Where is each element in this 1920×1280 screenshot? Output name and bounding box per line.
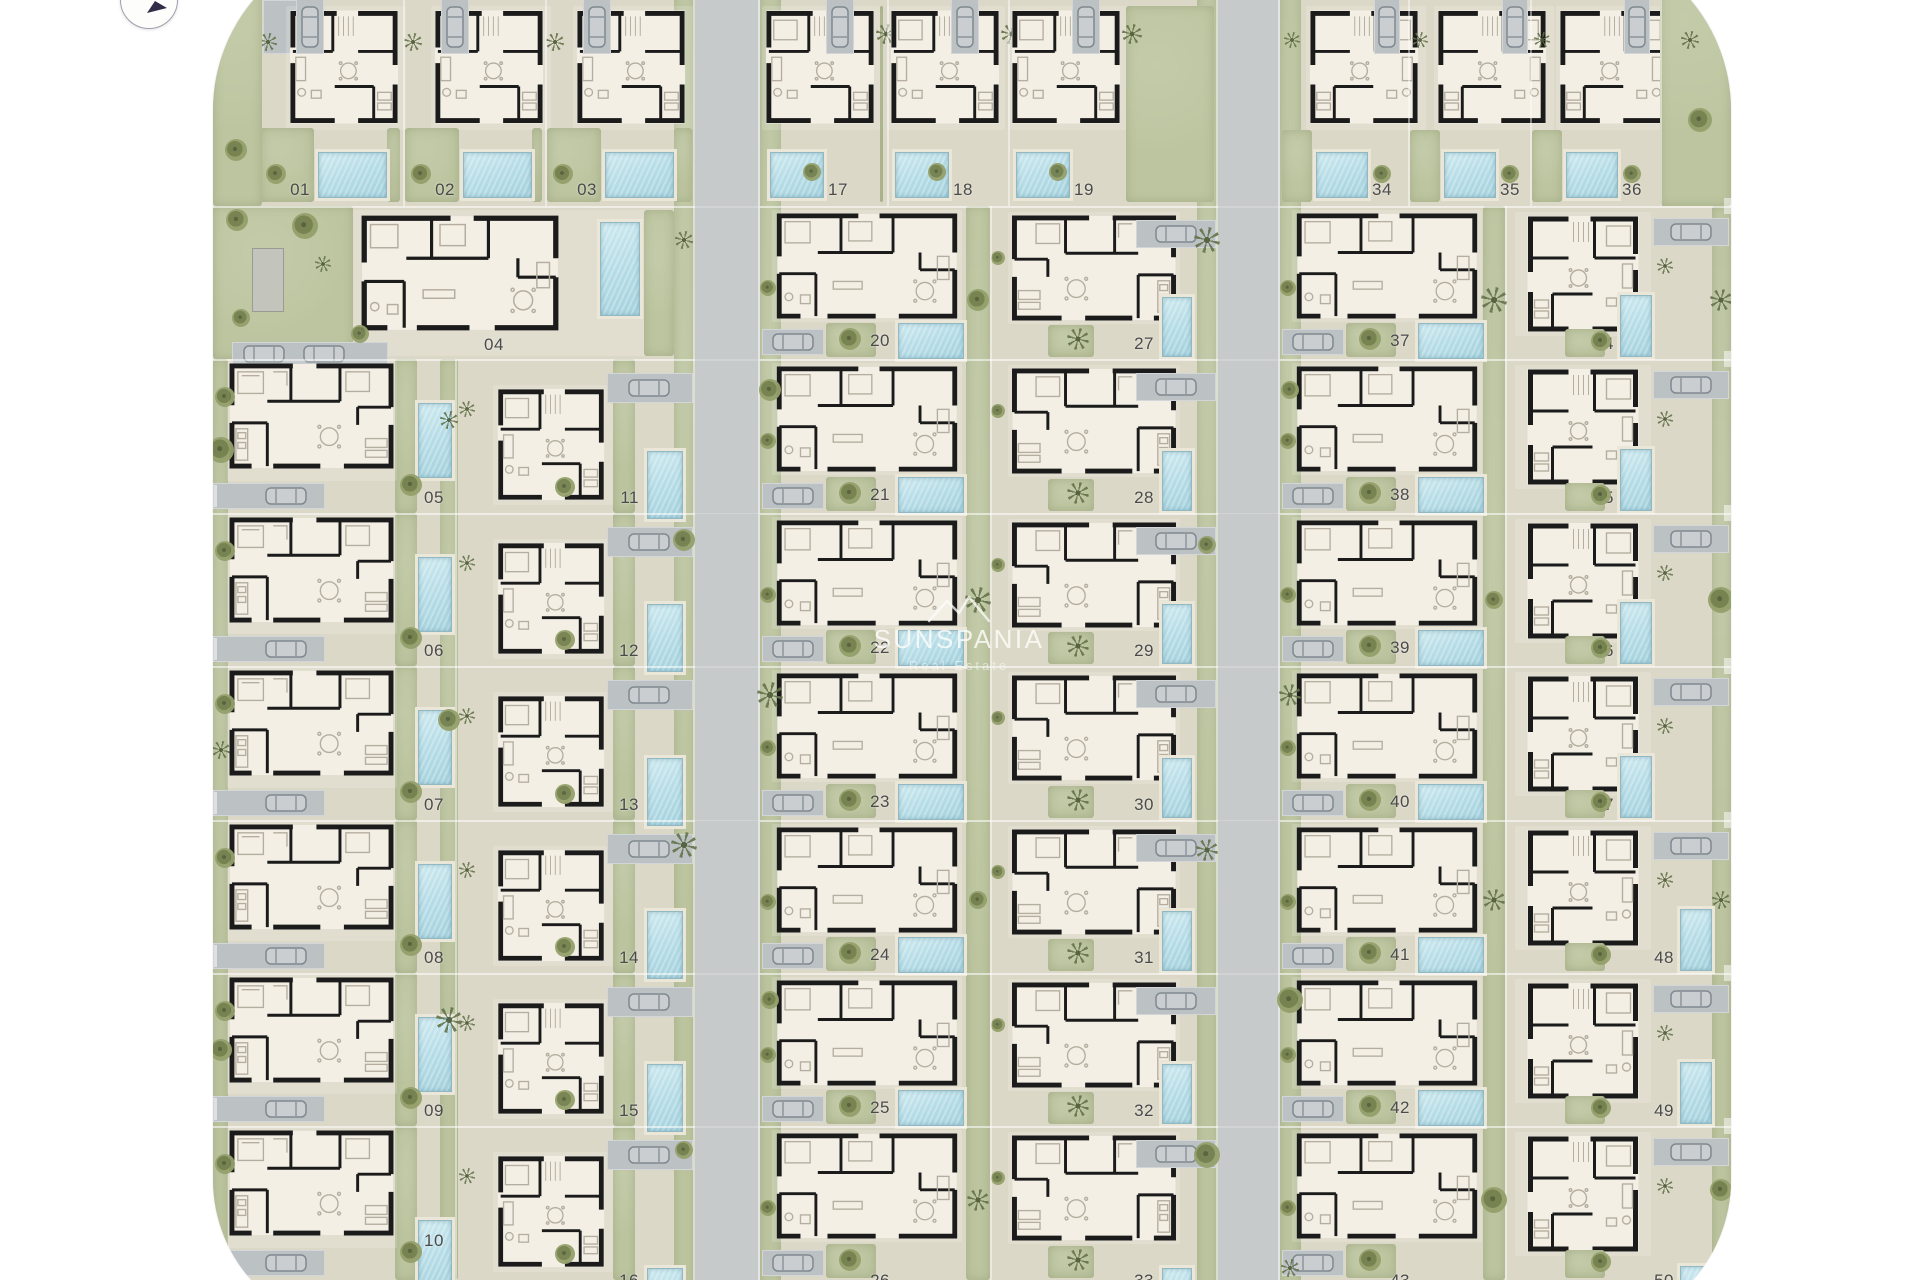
palm-icon (1067, 942, 1089, 964)
plot-number: 34 (1372, 181, 1408, 198)
plot-44[interactable]: 44 (1505, 206, 1731, 359)
tree-icon (1623, 165, 1641, 183)
plot-boundary (213, 666, 695, 668)
plot-34[interactable]: 34 (1280, 0, 1408, 206)
car-icon (1668, 681, 1714, 703)
plot-43[interactable]: 43 (1280, 1126, 1505, 1280)
plot-02[interactable]: 02 (403, 0, 545, 206)
plot-boundary (213, 513, 695, 515)
car-icon (1626, 4, 1648, 50)
plot-47[interactable]: 47 (1505, 666, 1731, 819)
car-icon (626, 377, 672, 399)
plot-37[interactable]: 37 (1280, 206, 1505, 359)
plot-boundary (213, 1126, 695, 1128)
house-floorplan (228, 976, 395, 1084)
plot-38[interactable]: 38 (1280, 359, 1505, 512)
tree-icon (1481, 1187, 1507, 1213)
palm-icon (459, 862, 475, 878)
tree-icon (761, 991, 779, 1009)
boundary-tick (1724, 198, 1731, 214)
tree-icon (760, 280, 776, 296)
curb-line (214, 638, 217, 660)
plot-42[interactable]: 42 (1280, 973, 1505, 1126)
road-seam (695, 1126, 760, 1128)
plot-number: 19 (1074, 181, 1110, 198)
plot-boundary (1660, 0, 1662, 206)
palm-icon (1194, 227, 1220, 253)
house-floorplan (495, 1001, 607, 1116)
house-floorplan (1294, 519, 1480, 627)
boundary-tick (1724, 351, 1731, 367)
plot-boundary (455, 359, 457, 1280)
house-floorplan (228, 1129, 395, 1237)
house-floorplan (1517, 1134, 1649, 1254)
swimming-pool (600, 222, 640, 316)
tree-icon (1194, 1142, 1220, 1168)
swimming-pool (898, 784, 964, 820)
palm-icon (967, 1189, 989, 1211)
plot-10[interactable]: 10 (213, 1126, 455, 1280)
tree-icon (555, 784, 575, 804)
plot-16[interactable]: 16 (455, 1126, 695, 1280)
car-icon (1153, 990, 1199, 1012)
plot-36[interactable]: 36 (1530, 0, 1660, 206)
plot-01[interactable]: 01 (258, 0, 403, 206)
swimming-pool (318, 152, 387, 198)
palm-icon (1657, 718, 1673, 734)
car-icon (444, 4, 466, 50)
tree-icon (991, 865, 1005, 879)
palm-icon (1279, 684, 1301, 706)
swimming-pool (1680, 1062, 1712, 1124)
plot-31[interactable]: 31 (990, 820, 1218, 973)
car-icon (626, 531, 672, 553)
tree-icon (991, 558, 1005, 572)
house-floorplan (774, 979, 960, 1087)
plot-boundary (1408, 0, 1410, 206)
plot-06[interactable]: 06 (213, 513, 455, 666)
palm-icon (459, 555, 475, 571)
plot-20[interactable]: 20 (760, 206, 990, 359)
car-icon (1668, 1141, 1714, 1163)
plot-number: 29 (1118, 642, 1154, 659)
car-icon (263, 792, 309, 814)
plot-46[interactable]: 46 (1505, 513, 1731, 666)
house-floorplan (228, 823, 395, 931)
palm-icon (440, 411, 458, 429)
tree-icon (400, 934, 422, 956)
car-icon (1668, 374, 1714, 396)
swimming-pool (1620, 449, 1652, 511)
plot-45[interactable]: 45 (1505, 359, 1731, 512)
swimming-pool (1418, 477, 1484, 513)
house-floorplan (1010, 8, 1122, 126)
palm-icon (1412, 32, 1428, 48)
garden (1532, 130, 1562, 202)
car-icon (1290, 485, 1336, 507)
house-floorplan (495, 848, 607, 963)
plot-number: 31 (1118, 949, 1154, 966)
car-icon (1290, 945, 1336, 967)
swimming-pool (418, 557, 452, 632)
palm-icon (671, 832, 697, 858)
swimming-pool (418, 864, 452, 939)
house-floorplan (774, 672, 960, 780)
plot-number: 03 (563, 181, 597, 198)
palm-icon (1281, 1259, 1299, 1277)
swimming-pool (898, 1090, 964, 1126)
road-seam (1218, 666, 1280, 668)
plot-number: 01 (276, 181, 310, 198)
car-icon (263, 1098, 309, 1120)
tree-icon (1708, 587, 1731, 613)
plot-boundary (545, 0, 547, 206)
plot-39[interactable]: 39 (1280, 513, 1505, 666)
plot-number: 18 (953, 181, 989, 198)
palm-icon (1067, 482, 1089, 504)
swimming-pool (647, 1268, 683, 1280)
car-icon (263, 945, 309, 967)
swimming-pool (1418, 784, 1484, 820)
plot-09[interactable]: 09 (213, 973, 455, 1126)
car-icon (770, 331, 816, 353)
palm-icon (546, 33, 564, 51)
plot-23[interactable]: 23 (760, 666, 990, 819)
tree-icon (967, 289, 989, 311)
swimming-pool (1418, 630, 1484, 666)
plot-boundary (1505, 206, 1507, 1280)
car-icon (1153, 223, 1199, 245)
plot-11[interactable]: 11 (455, 359, 695, 512)
house-floorplan (1517, 828, 1649, 948)
swimming-pool (1620, 756, 1652, 818)
car-icon (1668, 988, 1714, 1010)
car-icon (626, 1144, 672, 1166)
cursor-button[interactable] (120, 0, 178, 29)
cursor-icon (146, 0, 168, 14)
plot-number: 36 (1622, 181, 1658, 198)
plot-12[interactable]: 12 (455, 513, 695, 666)
curb-line (214, 485, 217, 507)
road-seam (1218, 359, 1280, 361)
swimming-pool (647, 604, 683, 672)
plot-26[interactable]: 26 (760, 1126, 990, 1280)
plot-29[interactable]: 29 (990, 513, 1218, 666)
tree-icon (803, 163, 821, 181)
plot-15[interactable]: 15 (455, 973, 695, 1126)
tree-icon (991, 404, 1005, 418)
palm-icon (315, 256, 331, 272)
car-icon (954, 4, 976, 50)
house-floorplan (228, 362, 395, 470)
road-seam (695, 820, 760, 822)
house-floorplan (774, 826, 960, 934)
garden (387, 128, 400, 202)
tree-icon (839, 789, 861, 811)
tree-icon (266, 164, 286, 184)
house-floorplan (774, 365, 960, 473)
plot-41[interactable]: 41 (1280, 820, 1505, 973)
car-icon (1153, 530, 1199, 552)
car-icon (829, 4, 851, 50)
car-icon (1668, 528, 1714, 550)
tree-icon (1198, 536, 1216, 554)
tree-icon (438, 709, 460, 731)
swimming-pool (1162, 1064, 1192, 1124)
garden (674, 128, 692, 202)
plot-number: 27 (1118, 335, 1154, 352)
swimming-pool (647, 911, 683, 979)
plot-number: 14 (601, 949, 639, 966)
road-seam (695, 973, 760, 975)
house-floorplan (774, 212, 960, 320)
boundary-tick (1724, 1118, 1731, 1134)
tree-icon (839, 482, 861, 504)
plot-27[interactable]: 27 (990, 206, 1218, 359)
plot-boundary (760, 1126, 1218, 1128)
tree-icon (839, 942, 861, 964)
palm-icon (1067, 789, 1089, 811)
house-floorplan (1294, 365, 1480, 473)
plot-boundary (990, 206, 992, 1280)
tree-icon (1359, 482, 1381, 504)
plot-17[interactable]: 17 (762, 0, 887, 206)
house-floorplan (1294, 826, 1480, 934)
tree-icon (1049, 163, 1067, 181)
palm-icon (1657, 1178, 1673, 1194)
house-floorplan (1294, 672, 1480, 780)
car-icon (263, 638, 309, 660)
plot-number: 49 (1636, 1102, 1674, 1119)
car-icon (626, 684, 672, 706)
plot-05[interactable]: 05 (213, 359, 455, 512)
corner-garden (213, 0, 262, 206)
swimming-pool (1162, 911, 1192, 971)
car-icon (1290, 331, 1336, 353)
swimming-pool (647, 758, 683, 826)
house-floorplan (1517, 981, 1649, 1101)
house-floorplan (360, 214, 560, 332)
swimming-pool (1680, 909, 1712, 971)
tree-icon (1359, 789, 1381, 811)
curb-line (214, 945, 217, 967)
house-floorplan (495, 387, 607, 502)
plot-50[interactable]: 50 (1505, 1126, 1731, 1280)
palm-icon (459, 401, 475, 417)
tree-icon (1688, 108, 1712, 132)
car-icon (1290, 1098, 1336, 1120)
plot-28[interactable]: 28 (990, 359, 1218, 512)
plot-boundary (403, 0, 405, 206)
swimming-pool (1620, 295, 1652, 357)
car-icon (770, 1098, 816, 1120)
tree-icon (991, 251, 1005, 265)
plot-33[interactable]: 33 (990, 1126, 1218, 1280)
plot-number: 04 (484, 336, 524, 353)
tree-icon (1710, 1179, 1731, 1201)
swimming-pool (1162, 297, 1192, 357)
swimming-pool (647, 451, 683, 519)
palm-icon (1657, 565, 1673, 581)
house-floorplan (228, 669, 395, 777)
tree-icon (351, 325, 369, 343)
palm-icon (1196, 839, 1218, 861)
tree-icon (1281, 381, 1299, 399)
tree-icon (400, 781, 422, 803)
tree-icon (1591, 485, 1611, 505)
swimming-pool (898, 477, 964, 513)
road-seam (1218, 206, 1280, 208)
palm-icon (1534, 32, 1550, 48)
plot-number: 15 (601, 1102, 639, 1119)
car-icon (1075, 4, 1097, 50)
swimming-pool (1444, 152, 1496, 198)
swimming-pool (1418, 937, 1484, 973)
garden (644, 210, 674, 356)
house-floorplan (495, 541, 607, 656)
tree-icon (555, 1244, 575, 1264)
plot-25[interactable]: 25 (760, 973, 990, 1126)
palm-icon (1712, 891, 1730, 909)
plot-32[interactable]: 32 (990, 973, 1218, 1126)
swimming-pool (1620, 602, 1652, 664)
plot-number: 48 (1636, 949, 1674, 966)
plot-boundary (760, 359, 1218, 361)
plot-number: 32 (1118, 1102, 1154, 1119)
tree-icon (1591, 1252, 1611, 1272)
swimming-pool (1418, 1090, 1484, 1126)
palm-icon (1681, 31, 1699, 49)
plot-22[interactable]: 22 (760, 513, 990, 666)
swimming-pool (605, 152, 674, 198)
car-icon (299, 4, 321, 50)
tree-icon (1280, 280, 1296, 296)
plot-49[interactable]: 49 (1505, 973, 1731, 1126)
tree-icon (759, 379, 781, 401)
plot-number: 10 (419, 1232, 449, 1249)
tree-icon (928, 163, 946, 181)
garden (1410, 130, 1440, 202)
car-icon (1153, 1143, 1199, 1165)
tree-icon (675, 1141, 693, 1159)
swimming-pool (898, 323, 964, 359)
house-floorplan (1558, 8, 1670, 126)
plot-18[interactable]: 18 (887, 0, 1008, 206)
house-floorplan (889, 8, 1001, 126)
house-floorplan (495, 694, 607, 809)
road-seam (1218, 973, 1280, 975)
tree-icon (1501, 165, 1519, 183)
palm-icon (1122, 24, 1142, 44)
house-floorplan (1294, 1132, 1480, 1240)
plot-04[interactable]: 04 (213, 206, 695, 359)
palm-icon (1481, 287, 1507, 313)
car-icon (626, 991, 672, 1013)
palm-icon (404, 33, 422, 51)
plot-number: 50 (1636, 1272, 1674, 1280)
plot-30[interactable]: 30 (990, 666, 1218, 819)
plot-13[interactable]: 13 (455, 666, 695, 819)
tree-icon (215, 541, 235, 561)
swimming-pool (418, 1220, 452, 1280)
plot-number: 06 (419, 642, 449, 659)
tree-icon (400, 1241, 422, 1263)
car-icon (770, 485, 816, 507)
house-floorplan (228, 516, 395, 624)
palm-icon (1067, 1249, 1089, 1271)
swimming-pool (1162, 758, 1192, 818)
tree-icon (1359, 1249, 1381, 1271)
plot-48[interactable]: 48 (1505, 820, 1731, 973)
road-seam (695, 513, 760, 515)
boundary-tick (1724, 505, 1731, 521)
plot-24[interactable]: 24 (760, 820, 990, 973)
car-icon (263, 1252, 309, 1274)
plot-14[interactable]: 14 (455, 820, 695, 973)
house-floorplan (495, 1154, 607, 1269)
tree-icon (1591, 945, 1611, 965)
boundary-tick (1724, 658, 1731, 674)
tree-icon (232, 309, 250, 327)
corner-garden (1660, 0, 1731, 206)
plot-number: 11 (601, 489, 639, 506)
plot-08[interactable]: 08 (213, 820, 455, 973)
road-seam (695, 359, 760, 361)
tree-icon (1359, 942, 1381, 964)
tree-icon (1591, 792, 1611, 812)
swimming-pool (898, 630, 964, 666)
swimming-pool (1566, 152, 1618, 198)
plot-number: 08 (419, 949, 449, 966)
swimming-pool (1418, 323, 1484, 359)
tree-icon (1485, 591, 1503, 609)
plot-03[interactable]: 03 (545, 0, 695, 206)
plot-35[interactable]: 35 (1408, 0, 1530, 206)
swimming-pool (463, 152, 532, 198)
plot-number: 05 (419, 489, 449, 506)
tree-icon (1280, 1047, 1296, 1063)
plot-number: 09 (419, 1102, 449, 1119)
tree-icon (839, 1249, 861, 1271)
plot-21[interactable]: 21 (760, 359, 990, 512)
swimming-pool (1162, 451, 1192, 511)
garden (1282, 130, 1312, 202)
car-icon (1153, 376, 1199, 398)
house-floorplan (1308, 8, 1420, 126)
road-seam (1218, 820, 1280, 822)
car-icon (1504, 4, 1526, 50)
plot-19[interactable]: 19 (1008, 0, 1218, 206)
house-floorplan (764, 8, 876, 126)
road-seam (695, 666, 760, 668)
palm-icon (1657, 411, 1673, 427)
curb-line (214, 792, 217, 814)
palm-icon (675, 231, 693, 249)
tree-icon (991, 711, 1005, 725)
site-plan-canvas: 0102031718193435360405060708091011121314… (0, 0, 1920, 1280)
plot-boundary (760, 666, 1218, 668)
plot-number: 02 (421, 181, 455, 198)
plot-40[interactable]: 40 (1280, 666, 1505, 819)
palm-icon (436, 1007, 462, 1033)
tree-icon (292, 213, 318, 239)
tree-icon (969, 891, 987, 909)
palm-icon (1657, 258, 1673, 274)
tree-icon (673, 529, 695, 551)
tree-icon (555, 477, 575, 497)
garden (532, 128, 542, 202)
plot-07[interactable]: 07 (213, 666, 455, 819)
